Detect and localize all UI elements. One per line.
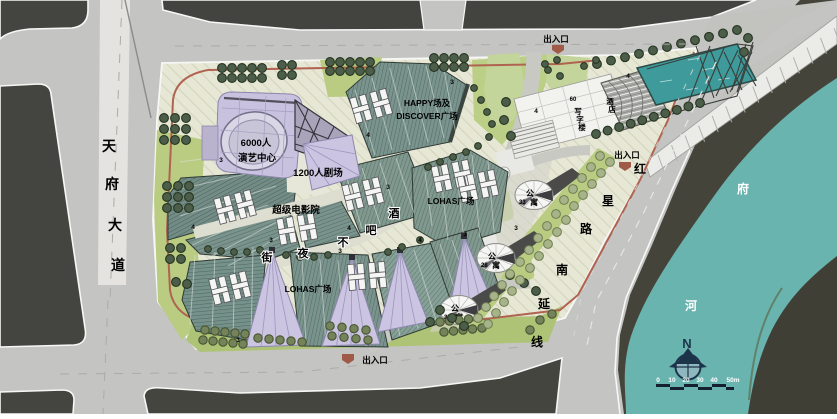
svg-text:店: 店 [608,104,616,114]
svg-text:40: 40 [710,377,718,384]
svg-text:线: 线 [531,334,543,349]
svg-text:公: 公 [451,304,459,313]
svg-text:4: 4 [418,237,422,244]
svg-text:50m: 50m [726,377,739,384]
svg-text:超级电影院: 超级电影院 [271,204,320,216]
svg-text:HAPPY场及: HAPPY场及 [404,98,451,108]
svg-text:吧: 吧 [366,224,377,237]
svg-text:N: N [682,336,691,351]
svg-text:28: 28 [481,263,488,269]
svg-text:星: 星 [602,194,614,208]
svg-text:河: 河 [684,298,697,313]
svg-text:DISCOVER广场: DISCOVER广场 [396,111,458,121]
svg-text:1200人剧场: 1200人剧场 [293,167,343,179]
svg-text:33: 33 [519,200,526,206]
svg-text:4: 4 [347,225,351,232]
svg-text:府: 府 [737,181,749,196]
svg-text:3: 3 [338,248,342,255]
svg-text:路: 路 [580,221,593,236]
svg-text:30: 30 [696,377,704,384]
svg-text:寓: 寓 [530,197,538,207]
svg-text:寓: 寓 [492,260,500,270]
svg-text:4: 4 [534,108,538,115]
svg-text:3: 3 [450,79,454,86]
svg-text:60: 60 [570,97,577,103]
svg-text:夜: 夜 [297,246,310,260]
svg-text:3: 3 [236,337,240,344]
svg-text:演艺中心: 演艺中心 [238,152,277,164]
svg-text:楼: 楼 [578,122,586,132]
svg-text:3: 3 [269,237,273,244]
svg-text:3: 3 [219,157,223,164]
svg-text:公: 公 [488,252,496,261]
svg-text:4: 4 [366,132,370,139]
svg-text:出入口: 出入口 [614,150,640,160]
svg-text:街: 街 [261,250,273,264]
svg-text:南: 南 [556,262,568,277]
svg-text:公: 公 [526,189,534,198]
svg-text:天: 天 [102,138,117,154]
svg-text:出入口: 出入口 [362,355,388,365]
svg-text:0: 0 [656,377,660,384]
svg-text:4: 4 [626,73,630,80]
svg-text:府: 府 [105,176,119,192]
svg-text:3: 3 [463,231,467,238]
svg-text:4: 4 [191,224,195,231]
svg-text:出入口: 出入口 [543,34,569,44]
svg-text:LOHAS广场: LOHAS广场 [285,284,332,294]
svg-text:红: 红 [634,161,646,176]
svg-text:3: 3 [514,225,518,232]
svg-text:延: 延 [537,296,551,311]
svg-text:6000人: 6000人 [241,137,272,149]
svg-text:LOHAS广场: LOHAS广场 [428,196,475,206]
svg-text:大: 大 [108,217,122,233]
svg-text:酒: 酒 [389,207,400,220]
svg-text:20: 20 [682,377,690,384]
svg-text:10: 10 [668,377,676,384]
svg-text:道: 道 [111,257,125,273]
svg-text:3: 3 [386,184,390,191]
